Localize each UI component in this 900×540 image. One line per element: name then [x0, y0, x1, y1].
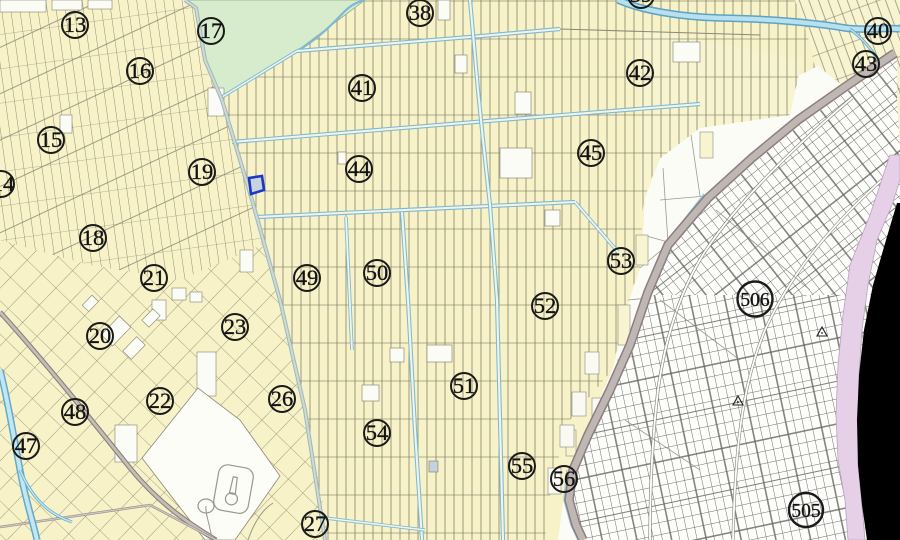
svg-text:20: 20	[89, 323, 112, 348]
svg-text:18: 18	[82, 225, 105, 250]
svg-text:56: 56	[553, 466, 576, 491]
svg-text:38: 38	[409, 0, 432, 25]
svg-text:13: 13	[64, 12, 87, 37]
svg-text:54: 54	[366, 420, 389, 445]
svg-text:48: 48	[64, 399, 87, 424]
svg-text:42: 42	[629, 60, 652, 85]
svg-text:40: 40	[867, 18, 890, 43]
svg-text:55: 55	[511, 453, 534, 478]
svg-text:41: 41	[351, 75, 374, 100]
svg-text:51: 51	[453, 373, 476, 398]
svg-text:22: 22	[149, 388, 172, 413]
svg-text:505: 505	[791, 501, 820, 522]
svg-text:44: 44	[348, 156, 371, 181]
svg-text:14: 14	[0, 171, 14, 196]
svg-text:16: 16	[129, 58, 152, 83]
svg-text:17: 17	[200, 18, 223, 43]
svg-text:45: 45	[580, 140, 603, 165]
svg-text:52: 52	[534, 293, 557, 318]
svg-text:53: 53	[610, 248, 633, 273]
svg-text:506: 506	[740, 290, 770, 311]
svg-text:39: 39	[630, 0, 653, 7]
svg-text:27: 27	[304, 511, 327, 536]
svg-text:47: 47	[15, 433, 38, 458]
svg-text:15: 15	[40, 127, 63, 152]
svg-text:19: 19	[191, 159, 214, 184]
svg-text:26: 26	[271, 386, 294, 411]
svg-text:43: 43	[855, 51, 878, 76]
svg-text:23: 23	[224, 314, 247, 339]
svg-text:49: 49	[296, 265, 319, 290]
svg-text:50: 50	[366, 260, 389, 285]
svg-text:21: 21	[143, 265, 166, 290]
